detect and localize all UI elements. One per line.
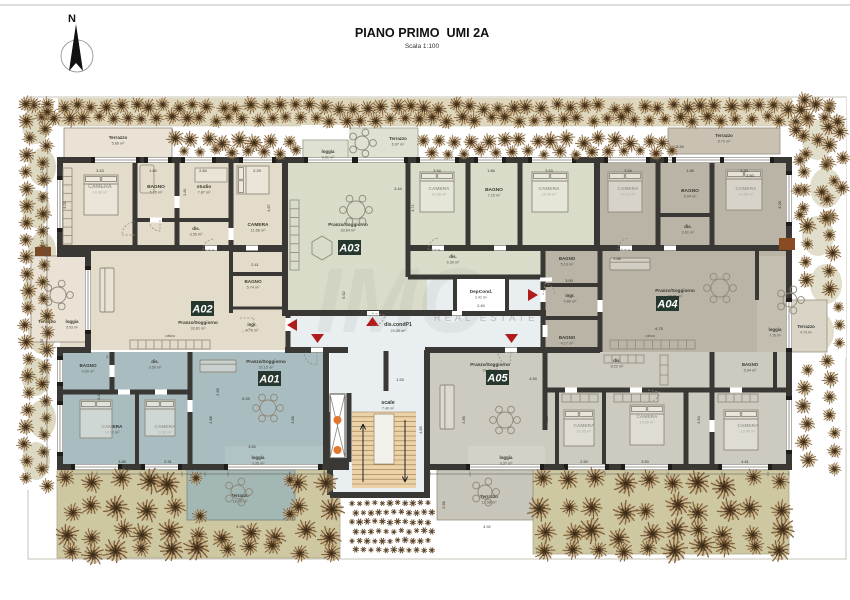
svg-text:4.54: 4.54 — [697, 416, 701, 423]
svg-text:DepCond.: DepCond. — [470, 289, 493, 295]
svg-text:2.65: 2.65 — [216, 388, 220, 395]
svg-text:A05: A05 — [486, 373, 508, 385]
svg-text:dis.: dis. — [192, 226, 200, 231]
svg-text:5.66 m²: 5.66 m² — [112, 142, 126, 146]
svg-text:4.85: 4.85 — [419, 426, 423, 433]
svg-text:3.54: 3.54 — [676, 145, 683, 149]
svg-text:5.94 m²: 5.94 m² — [744, 369, 758, 373]
svg-text:Terrazzo: Terrazzo — [389, 136, 407, 141]
svg-text:3.37 m²: 3.37 m² — [500, 462, 514, 466]
svg-text:4.50 m²: 4.50 m² — [82, 370, 96, 374]
svg-text:A02: A02 — [191, 304, 212, 316]
svg-text:A03: A03 — [338, 243, 359, 255]
svg-text:4.25: 4.25 — [545, 416, 549, 423]
svg-text:2.41 m²: 2.41 m² — [475, 296, 487, 300]
svg-text:2.31: 2.31 — [164, 460, 171, 464]
svg-text:12.98 m²: 12.98 m² — [482, 501, 498, 505]
svg-text:dis.condP1: dis.condP1 — [384, 322, 412, 328]
svg-text:4.92: 4.92 — [483, 525, 490, 529]
svg-text:4.02: 4.02 — [40, 197, 44, 203]
svg-text:ingr.: ingr. — [247, 322, 256, 327]
svg-text:4.80 m²: 4.80 m² — [564, 300, 578, 304]
svg-text:scale: scale — [381, 400, 395, 406]
svg-text:5.93 m²: 5.93 m² — [66, 326, 78, 330]
svg-text:7.40 m²: 7.40 m² — [382, 407, 395, 411]
svg-text:Terrazzo: Terrazzo — [109, 135, 128, 140]
svg-text:4.73 m²: 4.73 m² — [800, 331, 812, 335]
svg-text:Terrazzo: Terrazzo — [715, 133, 733, 138]
svg-text:3.61 m²: 3.61 m² — [682, 231, 696, 235]
svg-text:loggia: loggia — [769, 327, 782, 332]
svg-text:Pranzo/Soggiorno: Pranzo/Soggiorno — [655, 288, 695, 293]
svg-text:5.74 m²: 5.74 m² — [247, 286, 261, 290]
svg-text:3.40: 3.40 — [97, 392, 101, 399]
svg-text:5.52: 5.52 — [342, 291, 346, 298]
svg-text:BAGNO: BAGNO — [559, 335, 576, 340]
svg-text:3.54: 3.54 — [433, 169, 440, 173]
svg-text:2.40: 2.40 — [477, 304, 484, 308]
svg-text:6.97 m²: 6.97 m² — [392, 143, 406, 147]
svg-text:3.50: 3.50 — [746, 174, 753, 178]
svg-text:4.00: 4.00 — [778, 201, 782, 208]
svg-text:Scala 1:100: Scala 1:100 — [405, 43, 440, 50]
svg-text:loggia: loggia — [252, 455, 265, 460]
svg-text:3.88: 3.88 — [118, 460, 125, 464]
svg-text:ingr.: ingr. — [565, 293, 574, 298]
svg-text:BAGNO: BAGNO — [485, 187, 503, 193]
svg-text:2.65: 2.65 — [442, 501, 446, 508]
svg-text:4.17 m²: 4.17 m² — [561, 342, 575, 346]
svg-text:7.16 m²: 7.16 m² — [769, 334, 781, 338]
svg-text:23.35 m²: 23.35 m² — [391, 329, 407, 333]
svg-text:loggia: loggia — [66, 319, 79, 324]
svg-text:BAGNO: BAGNO — [79, 363, 97, 368]
svg-text:3.00: 3.00 — [565, 279, 572, 283]
svg-text:BAGNO: BAGNO — [147, 184, 165, 190]
svg-text:3.50: 3.50 — [740, 169, 747, 173]
svg-text:5.70 m²: 5.70 m² — [718, 140, 732, 144]
svg-text:3.50: 3.50 — [248, 445, 255, 449]
svg-text:3.59 m²: 3.59 m² — [149, 366, 163, 370]
svg-text:6.39: 6.39 — [242, 397, 249, 401]
svg-text:8.22 m²: 8.22 m² — [611, 365, 625, 369]
svg-text:1.41: 1.41 — [40, 240, 44, 246]
svg-text:BAGNO: BAGNO — [244, 279, 262, 284]
svg-text:3.54: 3.54 — [624, 169, 631, 173]
svg-text:7.87 m²: 7.87 m² — [198, 191, 212, 195]
svg-text:1.50: 1.50 — [40, 339, 44, 345]
svg-text:4.02: 4.02 — [63, 201, 67, 208]
svg-text:4.92: 4.92 — [236, 525, 243, 529]
svg-text:BAGNO: BAGNO — [681, 188, 699, 194]
svg-text:1.66: 1.66 — [613, 257, 620, 261]
svg-text:studio: studio — [197, 184, 211, 190]
svg-text:32.15 m²: 32.15 m² — [259, 366, 275, 370]
svg-text:3.71: 3.71 — [411, 204, 415, 211]
svg-text:4.88: 4.88 — [209, 416, 213, 423]
svg-text:cottura: cottura — [645, 334, 655, 338]
svg-text:3.35 m²: 3.35 m² — [252, 462, 266, 466]
svg-text:2.29: 2.29 — [253, 169, 260, 173]
svg-text:4.94: 4.94 — [529, 377, 536, 381]
svg-text:3.43: 3.43 — [96, 169, 103, 173]
svg-text:7.15 m²: 7.15 m² — [488, 194, 502, 198]
svg-text:1.53: 1.53 — [396, 378, 403, 382]
svg-text:3.66: 3.66 — [291, 416, 295, 423]
svg-text:4.61: 4.61 — [741, 460, 748, 464]
svg-text:dis.: dis. — [449, 254, 457, 259]
svg-text:N: N — [68, 13, 76, 25]
svg-text:1.98: 1.98 — [40, 369, 44, 375]
svg-text:BAGNO: BAGNO — [559, 256, 576, 261]
svg-text:3.44: 3.44 — [394, 187, 401, 191]
svg-text:PIANO PRIMO UMI 2A: PIANO PRIMO UMI 2A — [355, 26, 489, 40]
svg-text:6.39 m²: 6.39 m² — [447, 261, 461, 265]
svg-text:1.86: 1.86 — [686, 169, 693, 173]
svg-text:2.50: 2.50 — [580, 460, 587, 464]
svg-text:4.67: 4.67 — [267, 204, 271, 211]
svg-text:CAMERA: CAMERA — [247, 222, 269, 228]
svg-text:loggia: loggia — [322, 149, 335, 154]
svg-text:11.68 m²: 11.68 m² — [251, 229, 266, 233]
svg-text:4.76 m²: 4.76 m² — [246, 329, 260, 333]
svg-text:1.80: 1.80 — [149, 169, 156, 173]
svg-text:4.85: 4.85 — [462, 416, 466, 423]
svg-text:3.55 m²: 3.55 m² — [190, 233, 204, 237]
svg-text:33.64 m²: 33.64 m² — [341, 229, 357, 233]
svg-text:3.50: 3.50 — [641, 460, 648, 464]
svg-text:Terrazzo: Terrazzo — [797, 324, 815, 329]
svg-text:2.81: 2.81 — [183, 188, 187, 195]
svg-text:2.65: 2.65 — [106, 355, 113, 359]
svg-text:1.86: 1.86 — [487, 169, 494, 173]
svg-text:2.84: 2.84 — [199, 169, 206, 173]
svg-text:18.05 m²: 18.05 m² — [233, 500, 249, 504]
svg-text:Pranzo/Soggiorno: Pranzo/Soggiorno — [246, 359, 286, 364]
svg-text:33.81 m²: 33.81 m² — [191, 327, 207, 331]
svg-text:4.00: 4.00 — [40, 427, 44, 433]
svg-text:cottura: cottura — [165, 334, 175, 338]
svg-text:dis.: dis. — [151, 359, 159, 364]
svg-text:Pranzo/Soggiorno: Pranzo/Soggiorno — [178, 320, 218, 325]
svg-text:BAGNO: BAGNO — [742, 362, 759, 367]
svg-text:5.04 m²: 5.04 m² — [684, 195, 698, 199]
svg-text:A01: A01 — [258, 374, 279, 386]
svg-text:3.63: 3.63 — [545, 169, 552, 173]
svg-text:dis.: dis. — [684, 224, 692, 229]
svg-text:loggia: loggia — [500, 455, 513, 460]
svg-text:5.01: 5.01 — [40, 293, 44, 299]
svg-text:5.19 m²: 5.19 m² — [561, 263, 575, 267]
svg-text:6.75: 6.75 — [655, 327, 662, 331]
svg-text:A04: A04 — [656, 299, 677, 311]
svg-text:3.91 m²: 3.91 m² — [322, 156, 336, 160]
svg-text:2.41: 2.41 — [251, 263, 258, 267]
svg-text:1.11: 1.11 — [40, 167, 44, 173]
svg-text:5.05 m²: 5.05 m² — [150, 191, 164, 195]
